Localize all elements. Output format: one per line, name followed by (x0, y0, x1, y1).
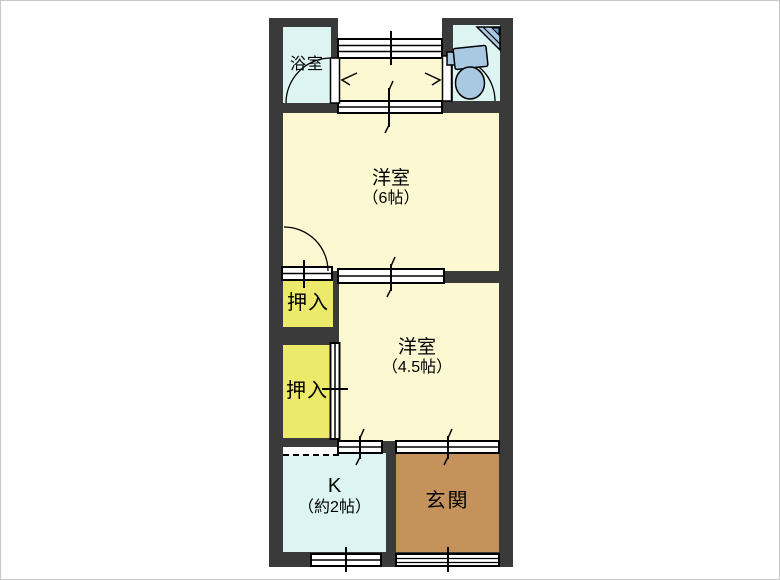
kitchen-label: K （約2帖） (283, 475, 386, 517)
western45-size: （4.5帖） (349, 359, 485, 378)
floorplan-canvas: 浴室 洋室 （6帖） 押入 押入 洋室 （4.5帖） K （約2帖） 玄関 (0, 0, 780, 580)
closet-upper-label: 押入 (283, 292, 333, 316)
room-toilet (453, 25, 500, 101)
western6-name: 洋室 (339, 168, 443, 190)
kitchen-open-boundary (283, 447, 339, 456)
bathroom-label: 浴室 (282, 56, 332, 75)
kitchen-name: K (283, 475, 386, 499)
western45-name: 洋室 (349, 337, 485, 359)
entrance-label: 玄関 (396, 490, 499, 514)
western45-label: 洋室 （4.5帖） (349, 337, 485, 378)
exterior-notch (338, 18, 442, 39)
kitchen-size: （約2帖） (283, 499, 386, 518)
western6-size: （6帖） (339, 190, 443, 209)
western6-label: 洋室 （6帖） (339, 168, 443, 209)
closet-lower-label: 押入 (283, 380, 331, 404)
room-corridor (338, 58, 442, 101)
